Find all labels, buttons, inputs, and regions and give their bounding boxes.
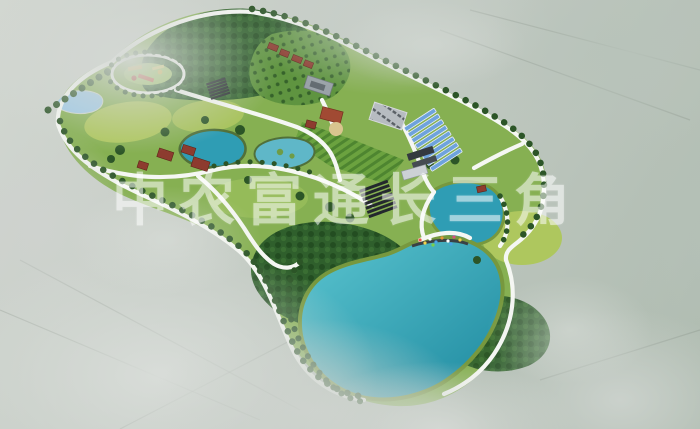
plaza (329, 122, 343, 136)
orchard-rows (249, 30, 350, 105)
site-plan-graphic (0, 0, 700, 429)
flower-garden (124, 63, 172, 85)
pond-islet (289, 153, 294, 158)
pond-islet (277, 149, 283, 155)
aerial-masterplan-rendering: 中农富通长三角 (0, 0, 700, 429)
